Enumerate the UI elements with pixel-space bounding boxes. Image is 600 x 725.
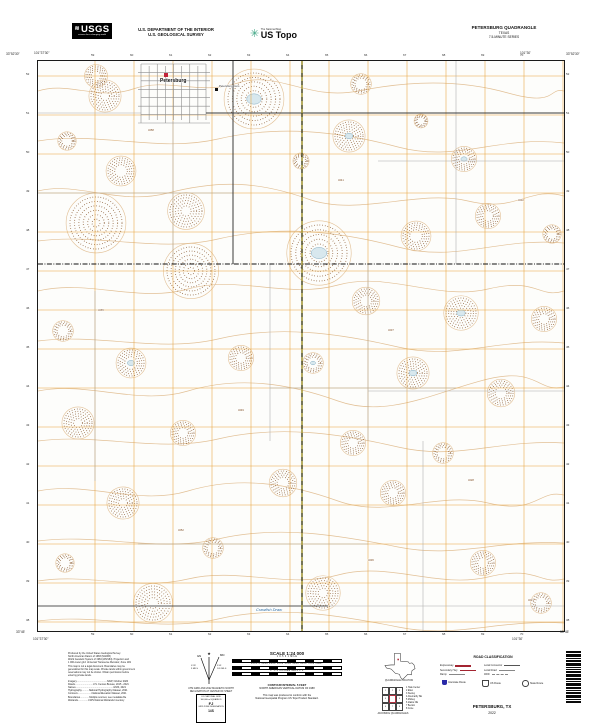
grid-coordinate-label: 52	[566, 72, 569, 76]
playa-depression-contour	[232, 349, 250, 367]
playa-depression-contour	[173, 198, 200, 225]
adjoining-quadrangles-list: 1 Hale Center2 Ellen3 Sterley4 Abernathy…	[406, 687, 422, 711]
grid-coordinate-label: 67	[403, 632, 406, 636]
barcode-bar	[566, 695, 581, 698]
playa-depression-contour	[295, 155, 307, 167]
grid-coordinate-label: 39	[566, 579, 569, 583]
road-legend-row: Secondary Hwy	[440, 669, 476, 672]
scale-block: SCALE 1:24 000 1 0.5 0 1 MILE1000 0 1000…	[228, 651, 346, 676]
playa-depression-contour	[62, 136, 73, 147]
playa-depression-contour	[495, 387, 507, 399]
cemetery-label: Petersburg Cem	[219, 84, 240, 88]
playa-depression-contour	[296, 156, 305, 165]
usng-zone: 14S	[197, 709, 225, 713]
grid-coordinate-label: 43	[566, 423, 569, 427]
playa-depression-contour	[436, 446, 451, 461]
road-legend-line-sample	[455, 665, 471, 667]
grid-coordinate-label: 65	[325, 632, 328, 636]
usgs-logo: ≋ USGS science for a changing world	[72, 23, 112, 39]
corner-lon-se: 101°30'	[512, 637, 523, 641]
grid-coordinate-label: 46	[566, 306, 569, 310]
playa-depression-contour	[92, 219, 100, 227]
playa-depression-contour	[74, 201, 117, 244]
quad-location-marker	[397, 659, 399, 661]
gn-mils: 9 MILS	[191, 668, 198, 670]
grid-coordinate-label: 61	[169, 632, 172, 636]
playa-depression-contour	[410, 230, 423, 243]
road-legend-row: 4WD	[484, 673, 508, 676]
spot-elevation: 3221	[528, 598, 534, 602]
ustopo-flower-icon: ✳	[250, 29, 259, 40]
playa-depression-contour	[178, 428, 189, 439]
spot-elevation: 3249	[238, 408, 244, 412]
grid-coordinate-label: 45	[566, 345, 569, 349]
adjoining-grid-cell: 4	[382, 695, 389, 703]
road-legend-label: 4WD	[484, 673, 490, 676]
road-classification-legend: ROAD CLASSIFICATION ExpresswaySecondary …	[438, 655, 558, 659]
map-sheet-name: PETERSBURG, TX	[446, 704, 538, 709]
grid-coordinate-label: 68	[442, 53, 445, 57]
usgs-tagline: science for a changing world	[78, 34, 106, 37]
playa-depression-contour	[56, 324, 71, 339]
barcode-bar	[566, 667, 581, 668]
adjoining-grid-cell: 7	[389, 703, 396, 711]
barcode-bar	[566, 701, 581, 703]
grid-coordinate-label: 43	[26, 423, 29, 427]
playa-depression-contour	[139, 589, 167, 617]
department-heading: U.S. DEPARTMENT OF THE INTERIOR U.S. GEO…	[110, 27, 242, 37]
spot-elevation: 3265	[98, 308, 104, 312]
contour-info: CONTOUR INTERVAL 5 FEET NORTH AMERICAN V…	[208, 684, 366, 701]
quadrangle-title-block: PETERSBURG QUADRANGLE TEXAS 7.5-MINUTE S…	[440, 25, 568, 40]
grid-coordinate-label: 40	[26, 540, 29, 544]
playa-depression-contour	[535, 310, 553, 328]
spot-elevation: 3236	[368, 558, 374, 562]
adjoining-grid-cell: 1	[382, 687, 389, 695]
adjoining-grid-cell: 6	[382, 703, 389, 711]
barcode-bar	[566, 683, 581, 686]
barcode-bar	[566, 692, 581, 694]
grid-coordinate-label: 68	[442, 632, 445, 636]
playa-depression-contour	[58, 556, 71, 569]
grid-coordinate-label: 48	[26, 228, 29, 232]
playa-depression-contour	[93, 84, 116, 107]
topo-map-canvas: PetersburgPetersburg CemCrawfish Draw325…	[38, 61, 564, 631]
playa-depression-contour	[108, 158, 134, 184]
road-legend-row: Ramp	[440, 673, 465, 676]
spot-elevation: 3237	[388, 328, 394, 332]
cemetery-marker	[215, 88, 218, 91]
grid-coordinate-label: 51	[26, 111, 29, 115]
adjoining-grid-cell: 2	[389, 687, 396, 695]
grid-coordinate-label: 69	[481, 53, 484, 57]
road-legend-row: Expressway	[440, 664, 471, 667]
playa-depression-contour	[354, 77, 369, 92]
playa-depression-contour	[318, 588, 328, 598]
grid-coordinate-label: 44	[566, 384, 569, 388]
route-shield-label: US Route	[490, 682, 501, 685]
playa-depression-contour	[119, 499, 128, 508]
road-legend-label: Ramp	[440, 673, 447, 676]
spot-elevation: 3252	[178, 528, 184, 532]
playa-depression-contour	[115, 165, 128, 178]
grid-coordinate-label: 65	[325, 53, 328, 57]
grid-coordinate-label: 63	[247, 632, 250, 636]
road-legend-label: Expressway	[440, 664, 453, 667]
texas-state-inset	[384, 653, 416, 680]
road-legend-label: Local Connector	[484, 664, 502, 667]
quad-series: 7.5-MINUTE SERIES	[440, 35, 568, 40]
road-legend-line-sample	[449, 674, 465, 675]
barcode-bar	[566, 690, 581, 691]
playa-depression-contour	[405, 225, 427, 247]
quadrangle-location-label: QUADRANGLE LOCATION	[372, 680, 426, 682]
grid-coordinate-label: 47	[26, 267, 29, 271]
usgs-logo-text: USGS	[81, 25, 110, 34]
playa-depression-contour	[491, 383, 511, 403]
road-legend-line-sample	[499, 670, 515, 671]
playa-depression-contour	[311, 581, 336, 606]
barcode-bar	[566, 669, 581, 670]
playa-depression-contour	[474, 554, 492, 572]
barcode-bar	[566, 654, 581, 657]
grid-coordinate-label: 41	[26, 501, 29, 505]
credit-line: Wetlands................FWS National Wet…	[68, 699, 193, 702]
barcode-bar	[566, 678, 581, 680]
playa-depression-contour	[478, 558, 489, 569]
grid-coordinate-label: 64	[286, 53, 289, 57]
grid-coordinate-label: 66	[364, 632, 367, 636]
playa-depression-contour	[64, 409, 92, 437]
playa-water	[247, 94, 262, 104]
playa-water	[409, 370, 417, 376]
gn-angle: 0°28´	[191, 664, 197, 667]
route-shield-item: State Route	[522, 680, 543, 687]
barcode-bar	[566, 674, 581, 677]
playa-depression-contour	[66, 411, 89, 434]
grid-coordinate-label: 59	[91, 53, 94, 57]
road-legend-line-sample	[460, 670, 476, 671]
route-shield-item: Interstate Route	[442, 680, 466, 685]
playa-depression-contour	[308, 578, 338, 608]
corner-lat-ne: 33°52'30"	[566, 52, 580, 56]
barcode-bar	[566, 658, 581, 659]
road-legend-label: Secondary Hwy	[440, 669, 458, 672]
playa-depression-contour	[384, 484, 402, 502]
conform-line2: National Geospatial Program US Topo Prod…	[208, 697, 366, 700]
grid-coordinate-label: 69	[481, 632, 484, 636]
map-area: PetersburgPetersburg CemCrawfish Draw325…	[37, 60, 565, 632]
grid-coordinate-label: 61	[169, 53, 172, 57]
playa-depression-contour	[60, 134, 73, 147]
playa-depression-contour	[88, 215, 105, 232]
playa-depression-contour	[483, 211, 494, 222]
school-building-marker	[164, 73, 168, 77]
stream-label: Crawfish Draw	[256, 607, 283, 612]
grid-coordinate-label: 66	[364, 53, 367, 57]
playa-depression-contour	[535, 597, 547, 609]
grid-coordinate-label: 46	[26, 306, 29, 310]
town-label: Petersburg	[160, 78, 186, 84]
adjoining-grid-cell: 5	[396, 695, 403, 703]
playa-depression-contour	[110, 160, 132, 182]
playa-depression-contour	[79, 206, 113, 240]
road-classification-title: ROAD CLASSIFICATION	[438, 655, 548, 659]
grid-coordinate-label: 62	[208, 632, 211, 636]
scale-bar	[232, 672, 342, 676]
grid-coordinate-label: 49	[566, 189, 569, 193]
grid-coordinate-label: 64	[286, 632, 289, 636]
dept-line2: U.S. GEOLOGICAL SURVEY	[110, 32, 242, 37]
texas-outline	[385, 654, 415, 680]
usgs-wave-icon: ≋	[75, 25, 80, 34]
barcode-bar	[566, 663, 581, 666]
grid-coordinate-label: 42	[566, 462, 569, 466]
adjoining-grid-cell: 3	[396, 687, 403, 695]
grid-coordinate-label: 51	[566, 111, 569, 115]
grid-coordinate-label: 49	[26, 189, 29, 193]
interstate-shield-icon	[442, 680, 447, 685]
grid-coordinate-label: 70	[520, 632, 523, 636]
grid-coordinate-label: 39	[26, 579, 29, 583]
road-legend-row: Local Road	[484, 669, 515, 672]
grid-coordinate-label: 67	[403, 53, 406, 57]
grid-coordinate-label: 45	[26, 345, 29, 349]
spot-elevation: 3228	[468, 478, 474, 482]
playa-depression-contour	[174, 424, 192, 442]
playa-depression-contour	[545, 227, 558, 240]
playa-depression-contour	[417, 117, 425, 125]
playa-depression-contour	[344, 434, 362, 452]
corner-lon-sw: 101°37'30"	[33, 637, 48, 641]
road-legend-line-sample	[504, 665, 520, 666]
playa-depression-contour	[479, 207, 497, 225]
spot-elevation: 3241	[338, 178, 344, 182]
playa-depression-contour	[74, 419, 83, 428]
adjoining-grid-center	[389, 695, 396, 703]
playa-depression-contour	[355, 78, 367, 90]
grid-coordinate-label: 41	[566, 501, 569, 505]
playa-depression-contour	[60, 558, 71, 569]
grid-coordinate-label: 52	[26, 72, 29, 76]
playa-depression-contour	[57, 325, 69, 337]
route-shield-item: US Route	[482, 680, 501, 687]
ustopo-label: US Topo	[261, 31, 297, 40]
playa-depression-contour	[547, 229, 558, 240]
playa-water	[310, 361, 315, 365]
grid-coordinate-label: 47	[566, 267, 569, 271]
playa-depression-contour	[348, 438, 359, 449]
spot-elevation: 3232	[518, 198, 524, 202]
adjoining-quadrangles-grid: 12345678	[382, 687, 403, 711]
barcode-bar	[566, 671, 581, 673]
adjoining-quad-name: 8 Cone	[406, 708, 422, 711]
barcode	[566, 651, 582, 704]
grid-coordinate-label: 42	[26, 462, 29, 466]
corner-lat-sw: 33°45'	[16, 630, 25, 634]
grid-coordinate-label: 50	[26, 150, 29, 154]
adjoining-quadrangles-label: ADJOINING QUADRANGLES	[368, 713, 418, 715]
magnetic-north-label: MN	[220, 653, 224, 657]
playa-depression-contour	[534, 596, 549, 611]
road-legend-label: Local Road	[484, 669, 497, 672]
scale-bars: 1 0.5 0 1 MILE1000 0 1000 2000 3000 4000…	[228, 656, 346, 676]
playa-water	[311, 247, 327, 258]
grid-coordinate-label: 48	[566, 228, 569, 232]
grid-coordinate-label: 63	[247, 53, 250, 57]
playa-depression-contour	[206, 541, 221, 556]
grid-coordinate-label: 40	[566, 540, 569, 544]
grid-coordinate-label: 59	[91, 632, 94, 636]
playa-depression-contour	[539, 314, 550, 325]
playa-depression-contour	[437, 447, 449, 459]
grid-coordinate-label: 38	[26, 618, 29, 622]
playa-depression-contour	[136, 586, 170, 620]
barcode-bar	[566, 660, 581, 662]
playa-outer-contour	[66, 193, 126, 253]
corner-lon-ne: 101°30'	[520, 51, 531, 55]
adjoining-grid-cell: 8	[396, 703, 403, 711]
grid-coordinate-label: 62	[208, 53, 211, 57]
grid-coordinate-label: 38	[566, 618, 569, 622]
grid-coordinate-label: 60	[130, 53, 133, 57]
corner-lat-se: 33°45'	[560, 630, 569, 634]
playa-depression-contour	[181, 206, 191, 216]
barcode-bar	[566, 687, 581, 689]
grid-coordinate-label: 60	[130, 632, 133, 636]
corner-lat-nw: 33°52'30"	[6, 52, 20, 56]
mn-angle: 5°41´	[217, 664, 223, 667]
route-shield-label: State Route	[530, 682, 543, 685]
state-shield-icon	[522, 680, 529, 687]
road-legend-row: Local Connector	[484, 664, 520, 667]
route-shield-label: Interstate Route	[448, 681, 466, 684]
playa-water	[457, 310, 465, 316]
barcode-bar	[566, 651, 581, 653]
ustopo-logo: ✳ The National Map US Topo	[250, 28, 297, 40]
road-legend-line-sample	[492, 674, 508, 675]
barcode-bar	[566, 681, 581, 682]
playa-water	[127, 360, 134, 365]
playa-depression-contour	[236, 353, 247, 364]
playa-water	[461, 157, 467, 161]
map-sheet-year: 2022	[446, 711, 538, 715]
spot-elevation: 3258	[148, 128, 154, 132]
grid-coordinate-label: 50	[566, 150, 569, 154]
barcode-bar	[566, 699, 581, 700]
playa-depression-contour	[356, 291, 376, 311]
grid-north-label: GN	[197, 654, 201, 658]
playa-depression-contour	[170, 195, 202, 227]
playa-water	[345, 133, 353, 139]
grid-coordinate-label: 44	[26, 384, 29, 388]
us-shield-icon	[482, 680, 489, 687]
true-north-star: ★	[207, 651, 211, 656]
corner-lon-nw: 101°37'30"	[34, 51, 49, 55]
playa-depression-contour	[388, 488, 399, 499]
playa-depression-contour	[148, 598, 159, 609]
mn-mils: 101 MILS	[217, 668, 227, 670]
playa-depression-contour	[360, 295, 372, 307]
production-credits: Produced by the United States Geological…	[68, 652, 193, 702]
